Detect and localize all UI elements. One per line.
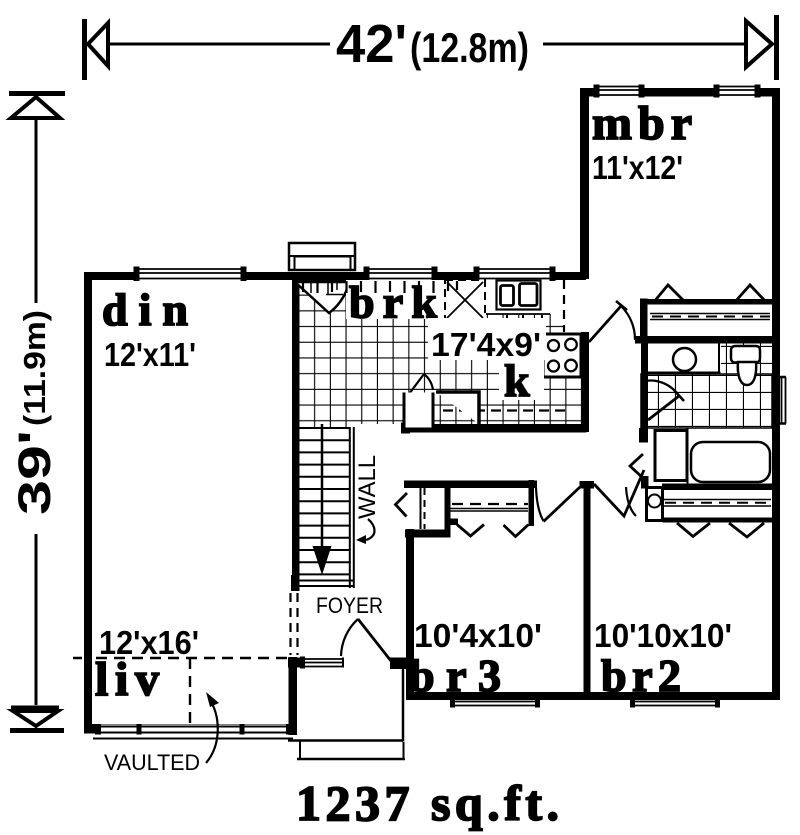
svg-text:din: din bbox=[102, 284, 188, 335]
svg-text:10'4x10': 10'4x10' bbox=[414, 617, 542, 654]
svg-text:12'x11': 12'x11' bbox=[104, 336, 196, 373]
svg-text:12'x16': 12'x16' bbox=[99, 624, 199, 661]
svg-text:k: k bbox=[504, 355, 530, 406]
svg-text:11'x12': 11'x12' bbox=[592, 149, 683, 186]
svg-text:br2: br2 bbox=[601, 650, 681, 701]
svg-text:(12.8m): (12.8m) bbox=[410, 24, 529, 71]
svg-text:10'10x10': 10'10x10' bbox=[594, 617, 732, 654]
svg-text:mbr: mbr bbox=[592, 97, 692, 150]
svg-text:WALL: WALL bbox=[354, 455, 381, 519]
svg-text:VAULTED: VAULTED bbox=[104, 750, 200, 775]
svg-text:(11.9m): (11.9m) bbox=[17, 310, 52, 426]
svg-text:FOYER: FOYER bbox=[316, 593, 383, 618]
svg-text:39': 39' bbox=[9, 430, 60, 515]
svg-text:br3: br3 bbox=[409, 650, 501, 701]
svg-text:42': 42' bbox=[336, 14, 407, 74]
svg-text:brk: brk bbox=[349, 277, 437, 328]
